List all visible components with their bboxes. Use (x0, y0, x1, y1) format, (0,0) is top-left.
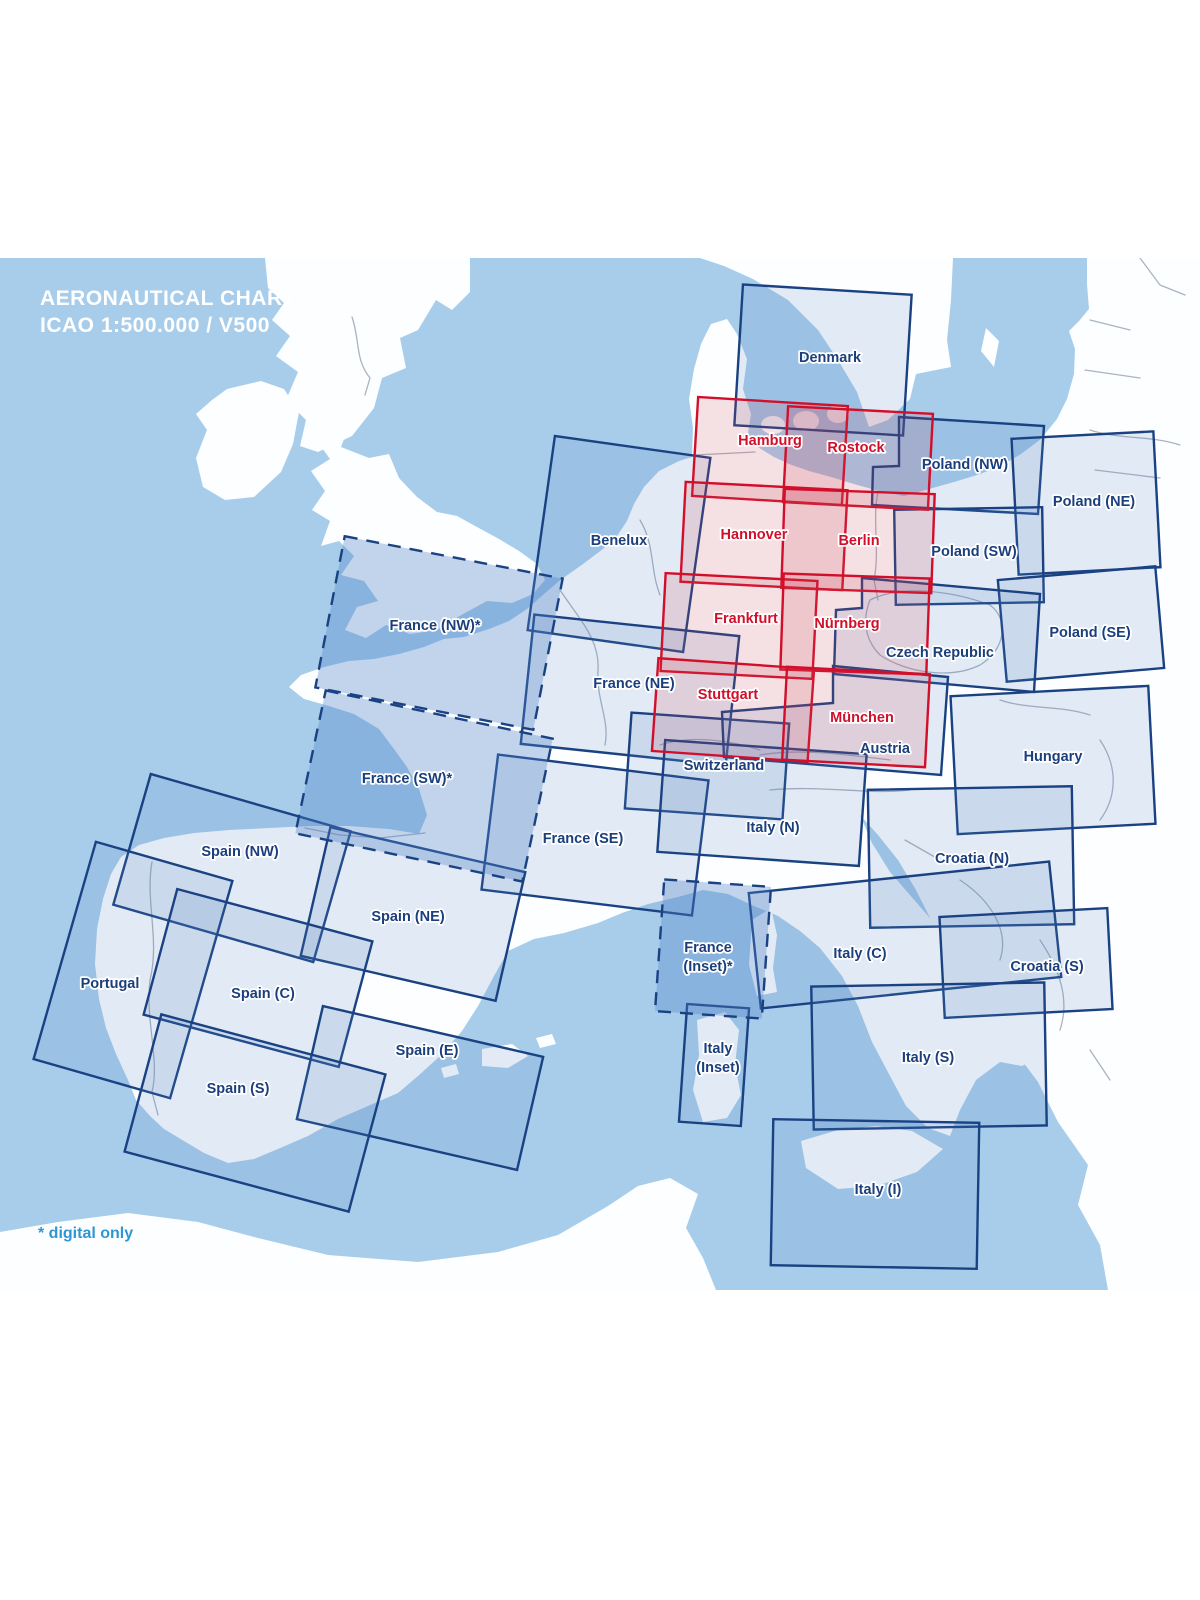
region-label-stuttgart: Stuttgart (698, 687, 759, 703)
region-label-italy-i: Italy (I) (855, 1182, 902, 1198)
region-label-hamburg: Hamburg (738, 433, 802, 449)
region-label-italy-s: Italy (S) (902, 1050, 955, 1066)
region-label-poland-nw: Poland (NW) (922, 457, 1008, 473)
region-label-croatia-n: Croatia (N) (935, 851, 1009, 867)
region-label-hungary: Hungary (1024, 749, 1083, 765)
region-label-portugal: Portugal (81, 976, 140, 992)
region-label-austria: Austria (860, 741, 911, 757)
region-label-poland-sw: Poland (SW) (931, 544, 1017, 560)
region-label-nurnberg: Nürnberg (814, 616, 879, 632)
region-label-france-nw: France (NW)* (389, 618, 480, 634)
region-label-italy-inset: Italy (703, 1041, 732, 1057)
region-label-france-sw: France (SW)* (362, 771, 453, 787)
region-label-poland-se: Poland (SE) (1049, 625, 1131, 641)
region-label-czech-republic: Czech Republic (886, 645, 994, 661)
region-label-spain-c: Spain (C) (231, 986, 295, 1002)
region-label-italy-c: Italy (C) (833, 946, 886, 962)
digital-only-footnote: * digital only (38, 1225, 133, 1242)
region-label-france-se: France (SE) (543, 831, 624, 847)
region-label-france-ne: France (NE) (593, 676, 675, 692)
region-label-spain-e: Spain (E) (396, 1043, 459, 1059)
region-label-croatia-s: Croatia (S) (1010, 959, 1083, 975)
map-title-line2: ICAO 1:500.000 / V500 (40, 314, 270, 337)
map-area: DenmarkPoland (NW)Poland (NE)Poland (SW)… (0, 258, 1200, 1290)
region-label-poland-ne: Poland (NE) (1053, 494, 1135, 510)
region-label-italy-inset-line2: (Inset) (696, 1060, 740, 1076)
region-label-italy-n: Italy (N) (746, 820, 799, 836)
europe-coverage-map: DenmarkPoland (NW)Poland (NE)Poland (SW)… (0, 0, 1200, 1600)
region-label-munchen: München (830, 710, 894, 726)
region-label-france-inset-line2: (Inset)* (683, 959, 733, 975)
region-label-denmark: Denmark (799, 350, 862, 366)
region-label-benelux: Benelux (591, 533, 647, 549)
region-label-spain-s: Spain (S) (207, 1081, 270, 1097)
region-label-berlin: Berlin (838, 533, 879, 549)
region-label-spain-ne: Spain (NE) (371, 909, 444, 925)
map-title-line1: AERONAUTICAL CHARTS (40, 287, 310, 310)
region-label-france-inset: France (684, 940, 732, 956)
region-label-hannover: Hannover (721, 527, 788, 543)
region-label-switzerland: Switzerland (684, 758, 765, 774)
region-label-rostock: Rostock (827, 440, 885, 456)
chart-coverage-page: DenmarkPoland (NW)Poland (NE)Poland (SW)… (0, 0, 1200, 1600)
region-label-spain-nw: Spain (NW) (201, 844, 278, 860)
region-label-frankfurt: Frankfurt (714, 611, 778, 627)
